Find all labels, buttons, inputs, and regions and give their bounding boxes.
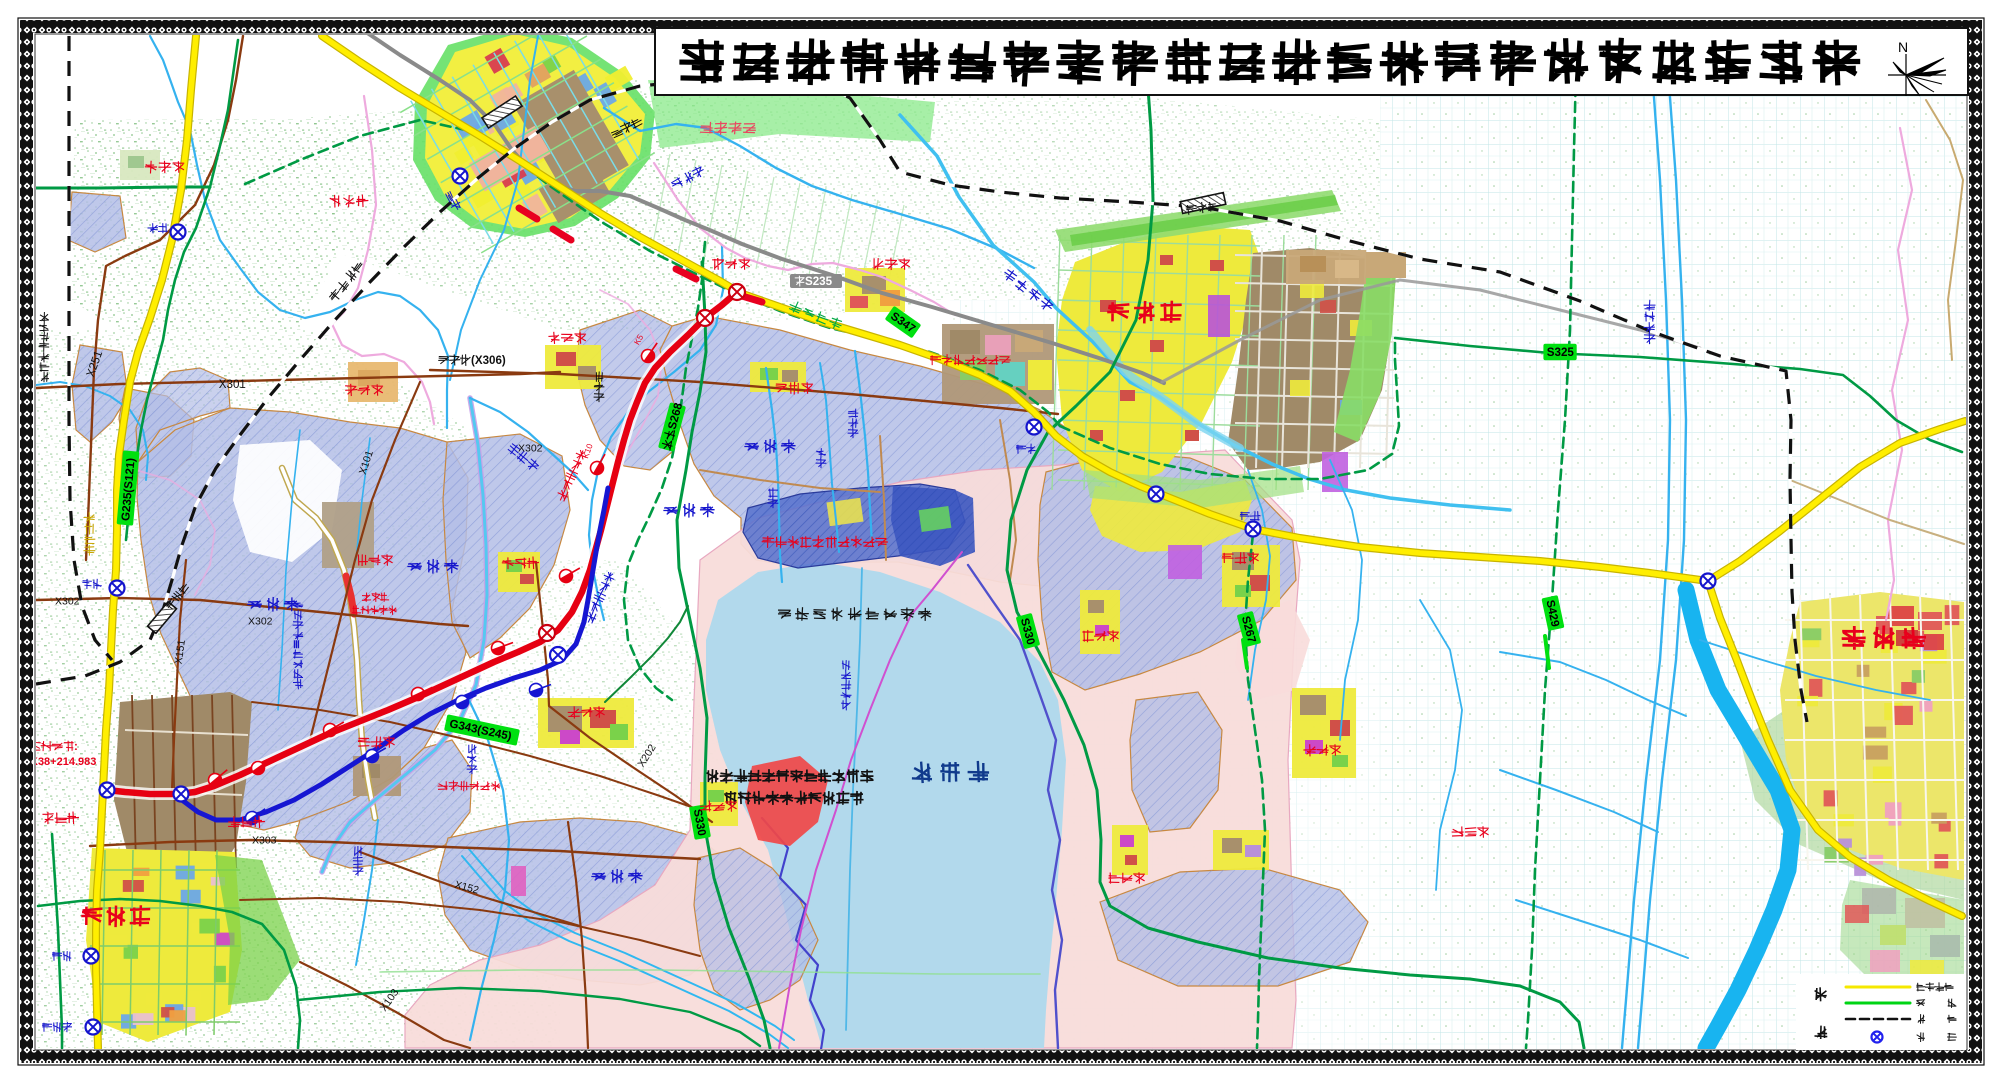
svg-text:S235: S235: [805, 275, 833, 288]
svg-text:X303: X303: [252, 835, 277, 847]
svg-text:X302: X302: [518, 443, 543, 455]
svg-text:X301: X301: [219, 378, 246, 391]
svg-text:K38+214.983: K38+214.983: [30, 756, 96, 768]
svg-text:N: N: [1898, 39, 1908, 55]
svg-text::: :: [74, 740, 78, 753]
svg-text:X302: X302: [55, 596, 80, 608]
svg-text:S325: S325: [1547, 346, 1575, 359]
svg-text:Ⅲ: Ⅲ: [293, 640, 300, 651]
svg-text:(X306): (X306): [471, 354, 506, 367]
svg-text:X302: X302: [248, 616, 273, 628]
